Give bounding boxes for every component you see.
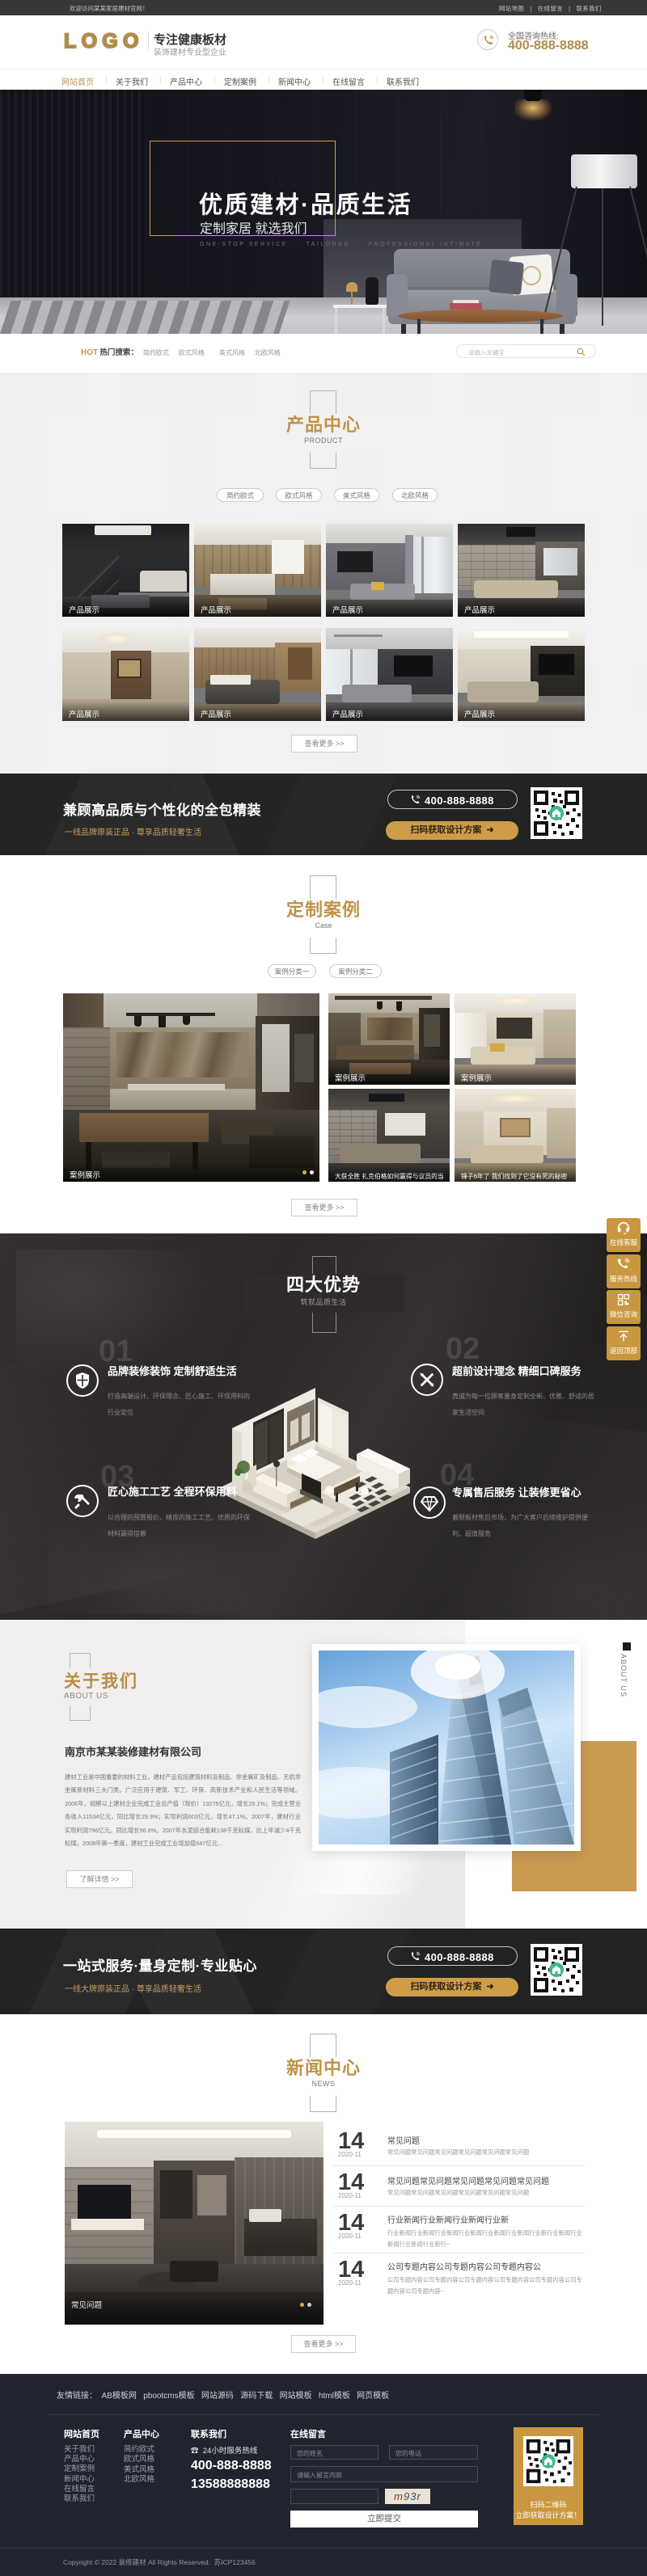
svg-text:LOGO: LOGO bbox=[64, 31, 139, 52]
